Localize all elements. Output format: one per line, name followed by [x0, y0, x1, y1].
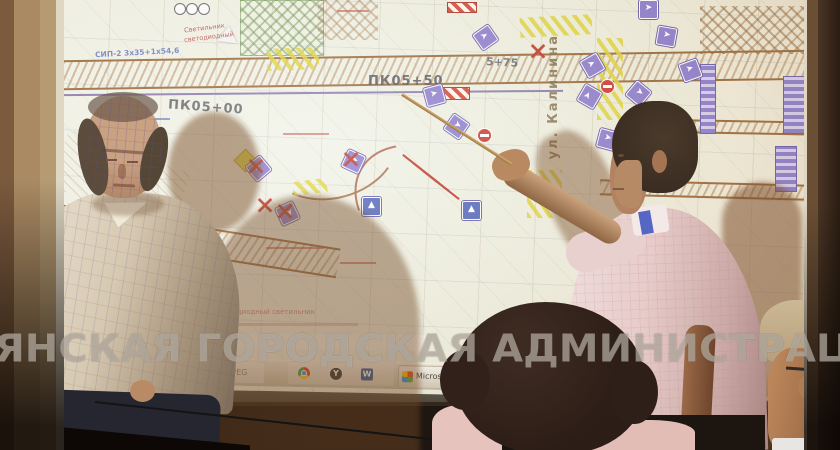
presenter-left-hand — [130, 380, 155, 402]
presenter-right-eye — [618, 154, 624, 157]
pedestrian-sign-icon: ▲ — [462, 201, 481, 220]
direction-sign-icon: ➤ — [472, 24, 498, 50]
conference-room-photo: ПК05+00 ПК05+50 5+75 ул. Калинина СИП-2 … — [0, 0, 840, 450]
direction-sign-icon: ➤ — [655, 25, 677, 47]
watermark-text: ЯНСКАЯ ГОРОДСКАЯ АДМИНИСТРАЦИЯ — [0, 327, 840, 373]
presenter-right-mouth — [613, 188, 624, 190]
presenter-left-head-projection — [84, 96, 162, 198]
direction-sign-icon: ➤ — [423, 84, 446, 107]
direction-sign-icon: ➤ — [639, 0, 658, 19]
direction-sign-icon: ➤ — [577, 84, 603, 110]
wall-right-shade — [804, 0, 840, 450]
presenter-right-ear — [652, 150, 667, 173]
presenter-right-cheek — [614, 160, 642, 208]
direction-sign-icon: ➤ — [580, 53, 606, 79]
no-entry-icon — [600, 79, 615, 94]
no-entry-icon — [477, 128, 492, 143]
wall-left-shade — [0, 0, 64, 450]
direction-sign-icon: ➤ — [678, 58, 702, 82]
red-x-mark: ✕ — [341, 148, 361, 172]
red-x-mark: ✕ — [528, 40, 548, 64]
